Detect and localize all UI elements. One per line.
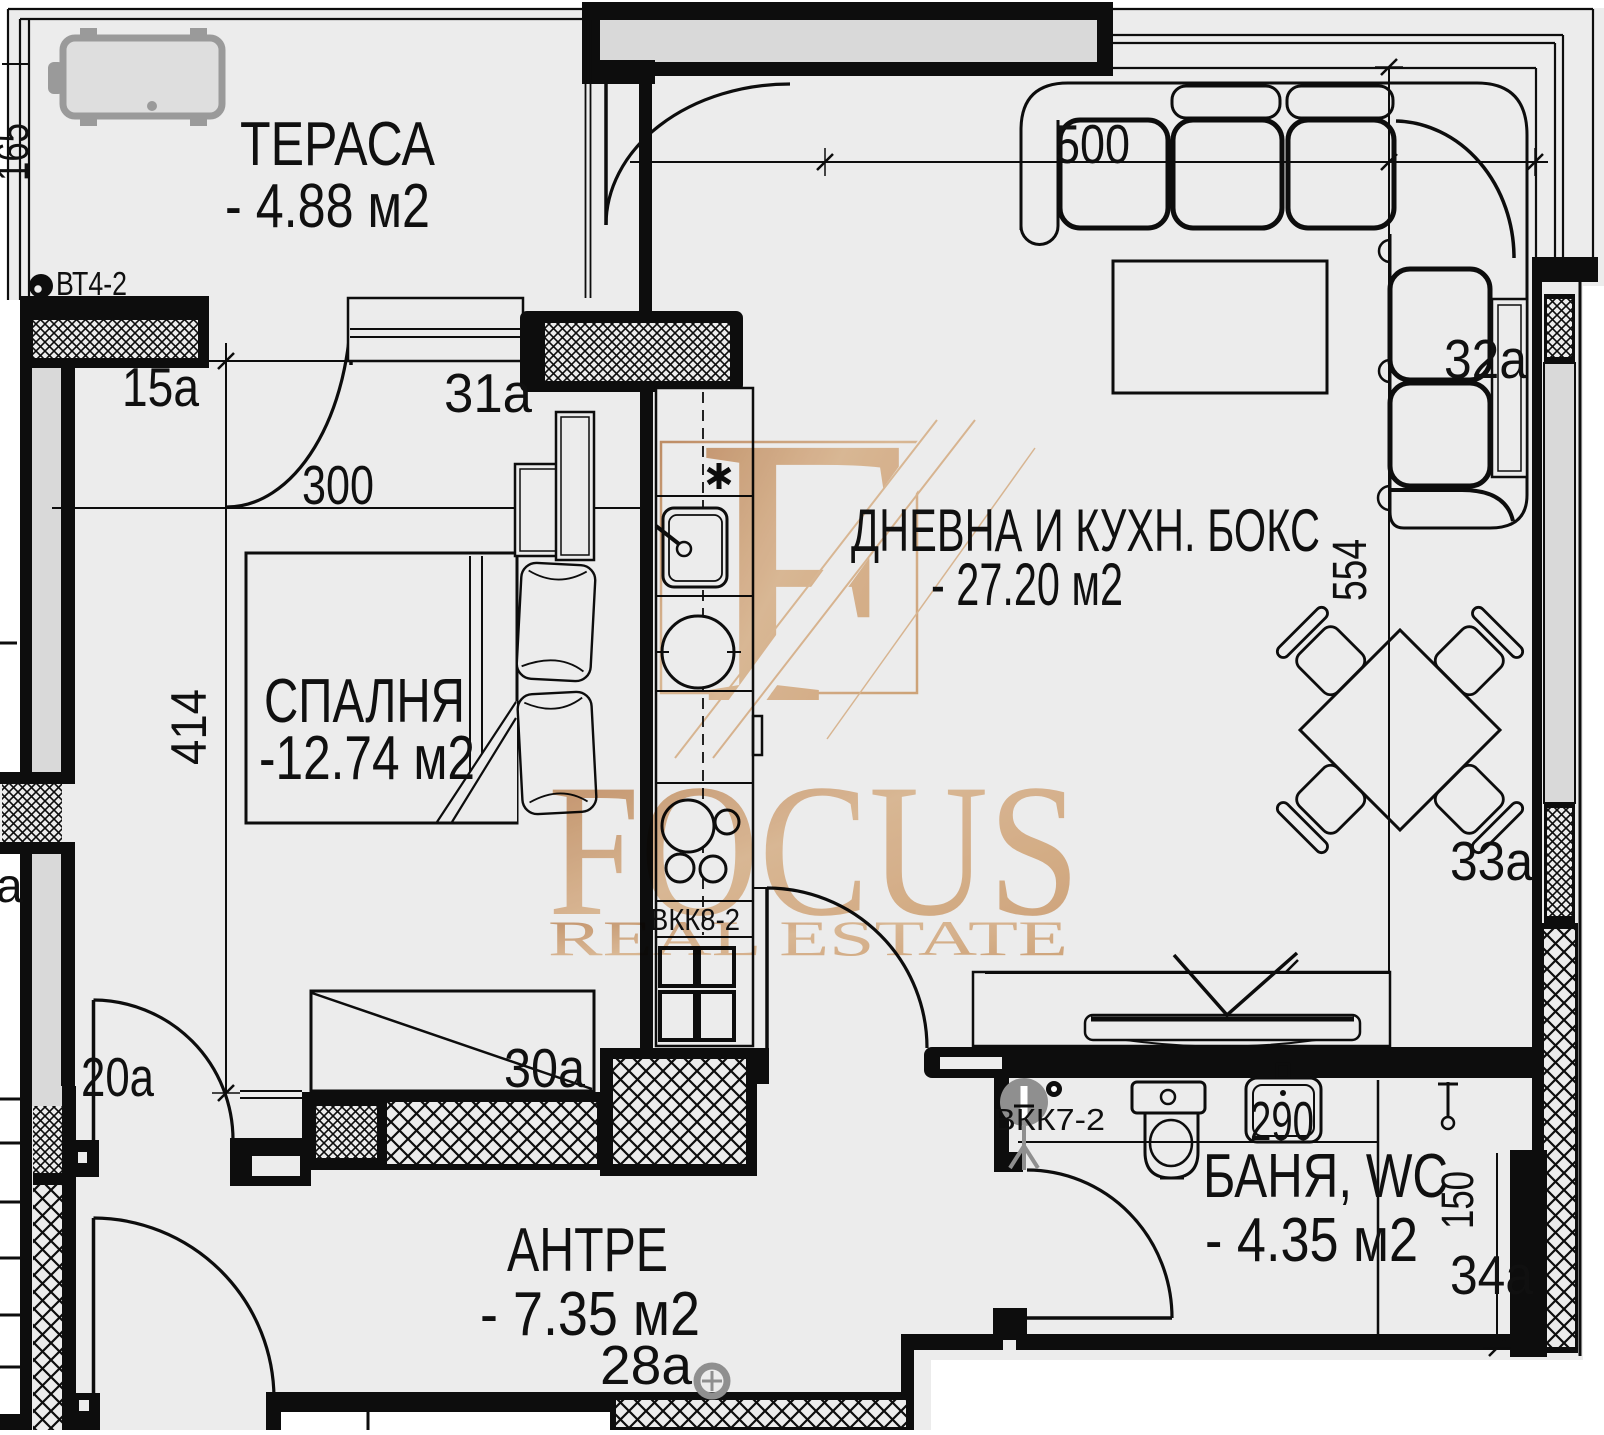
svg-text:ВКК8-2: ВКК8-2 xyxy=(650,902,740,937)
svg-text:- 4.88 м2: - 4.88 м2 xyxy=(225,172,430,241)
svg-text:28а: 28а xyxy=(600,1334,692,1396)
svg-text:34а: 34а xyxy=(1450,1244,1533,1306)
svg-text:300: 300 xyxy=(302,454,374,516)
svg-text:414: 414 xyxy=(161,689,217,765)
svg-text:165: 165 xyxy=(0,123,38,181)
svg-text:ВКК7-2: ВКК7-2 xyxy=(993,1102,1105,1137)
svg-text:33а: 33а xyxy=(1450,830,1533,892)
svg-text:REAL ESTATE: REAL ESTATE xyxy=(548,910,1068,966)
svg-text:150: 150 xyxy=(1432,1171,1483,1229)
svg-text:АНТРЕ: АНТРЕ xyxy=(507,1216,668,1285)
svg-text:а: а xyxy=(0,860,23,913)
svg-text:20а: 20а xyxy=(81,1046,154,1108)
svg-text:32а: 32а xyxy=(1444,328,1527,390)
svg-text:500: 500 xyxy=(1055,113,1130,175)
svg-text:554: 554 xyxy=(1324,539,1377,601)
svg-text:-12.74 м2: -12.74 м2 xyxy=(259,724,475,793)
svg-text:ТЕРАСА: ТЕРАСА xyxy=(240,110,436,179)
svg-text:31а: 31а xyxy=(444,362,532,424)
svg-text:- 27.20 м2: - 27.20 м2 xyxy=(931,551,1123,618)
svg-text:БАНЯ, WC: БАНЯ, WC xyxy=(1203,1142,1448,1211)
svg-text:290: 290 xyxy=(1250,1090,1314,1152)
svg-text:- 4.35 м2: - 4.35 м2 xyxy=(1205,1206,1418,1275)
svg-text:15а: 15а xyxy=(122,356,199,418)
svg-text:ВТ4-2: ВТ4-2 xyxy=(56,265,127,302)
svg-text:30а: 30а xyxy=(504,1037,585,1099)
